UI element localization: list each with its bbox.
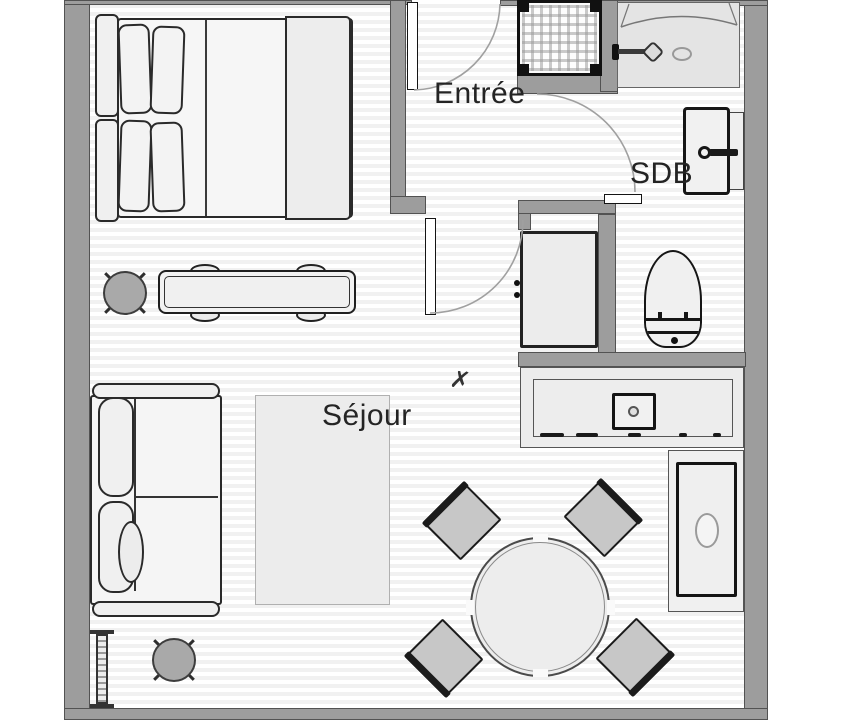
cabinet-handle [628,433,641,437]
drain-oval [672,47,692,61]
wall-top-left [64,0,412,5]
bed-fold-line [205,20,207,216]
entry-door-leaf [407,2,418,90]
wall-bath-divider [598,214,616,354]
double-bed [93,12,355,224]
washing-machine-icon [520,231,598,348]
cabinet-handle [540,433,564,437]
table-inner-ring [475,542,605,672]
toilet-flush-dot [671,337,678,344]
wall-bottom [64,708,768,720]
appliance-handle [695,513,719,548]
cabinet-handle-bar [709,149,738,156]
table-notch [607,600,615,615]
radiator-cap [90,704,114,708]
sofa-throw-pillow [118,521,144,583]
room-label-sejour: Séjour [322,399,412,433]
shower-corner-post [590,2,600,12]
wall-entry-step [390,196,426,214]
room-label-sdb: SDB [630,157,693,191]
stool-icon [97,265,153,321]
wall-hall-top [518,200,616,214]
table-notch [533,669,548,677]
toilet-seat-band [644,318,702,334]
hall-door-leaf [425,218,436,315]
pillow-icon [117,23,152,114]
bath-door-leaf [604,194,642,204]
shower-corner-post [590,64,600,74]
stool-icon [148,634,200,686]
cabinet-handle [576,433,598,437]
round-dining-table-icon [470,537,610,677]
bathroom-sink-icon [617,2,740,88]
wall-kitchen-top [518,352,746,367]
wall-bedroom-divider [390,0,406,214]
wall-hall-nub [518,213,531,230]
radiator-icon [86,630,118,708]
shower-corner-post [519,64,529,74]
pillow-icon [149,25,185,114]
stool-seat [103,271,147,315]
sofa-icon [90,383,222,617]
wall-right [744,0,768,720]
shower-icon [517,0,602,76]
cabinet-handle [679,433,687,437]
latch-dot [514,292,520,298]
latch-dot [514,280,520,286]
sofa-seat-split [134,496,218,498]
desk-area [158,260,356,324]
wall-left [64,0,90,720]
radiator-body [96,634,108,704]
desk-icon [158,270,356,314]
faucet-icon [628,406,639,417]
toilet-icon [644,250,702,348]
desk-inner-edge [164,276,350,308]
floor-plan: Entrée SDB Séjour ✗ [0,0,848,720]
sofa-back-cushion [98,397,134,497]
sofa-armrest [92,383,220,399]
table-notch [466,600,474,615]
cabinet-handle [713,433,721,437]
bed-duvet [285,16,351,220]
room-label-entree: Entrée [434,77,525,111]
sofa-armrest [92,601,220,617]
stool-seat [152,638,196,682]
table-notch [533,534,548,542]
bed-headboard [95,119,119,222]
pillow-icon [117,119,152,212]
shower-corner-post [519,2,529,12]
shower-tray-pattern [522,5,597,71]
bed-headboard [95,14,119,117]
pillow-icon [149,121,185,212]
